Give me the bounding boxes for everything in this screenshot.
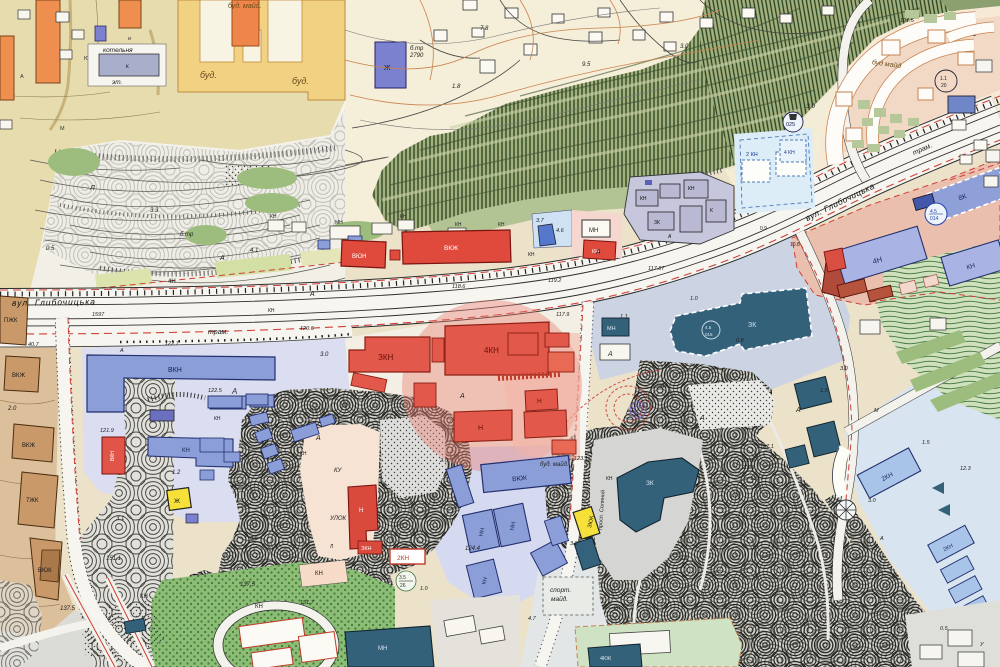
svg-text:Л: Л bbox=[330, 544, 333, 550]
svg-text:А: А bbox=[315, 435, 321, 442]
svg-text:Ж: Ж bbox=[174, 498, 180, 505]
svg-text:ВКЖ: ВКЖ bbox=[444, 245, 458, 252]
svg-text:107.5: 107.5 bbox=[900, 18, 915, 24]
svg-text:025: 025 bbox=[786, 122, 795, 128]
svg-text:2.0: 2.0 bbox=[7, 406, 17, 412]
svg-text:КН: КН bbox=[214, 416, 221, 422]
svg-text:20: 20 bbox=[941, 83, 947, 89]
svg-text:б.тр: б.тр bbox=[410, 46, 424, 52]
svg-text:3.0: 3.0 bbox=[840, 366, 849, 372]
svg-text:КН: КН bbox=[498, 222, 505, 228]
svg-text:А: А bbox=[659, 383, 665, 390]
svg-text:4.7: 4.7 bbox=[528, 616, 537, 622]
svg-text:122.5: 122.5 bbox=[208, 388, 223, 394]
svg-text:ЗК: ЗК bbox=[654, 220, 660, 226]
svg-text:1.8: 1.8 bbox=[452, 84, 461, 90]
svg-text:2001: 2001 bbox=[741, 465, 754, 471]
svg-text:КУ: КУ bbox=[334, 468, 343, 474]
svg-text:26: 26 bbox=[400, 583, 406, 589]
svg-text:120.6: 120.6 bbox=[300, 326, 315, 332]
svg-text:121.9: 121.9 bbox=[100, 428, 114, 434]
svg-text:и: и bbox=[128, 36, 131, 42]
svg-text:ПЖК: ПЖК bbox=[4, 318, 18, 324]
svg-text:3.1: 3.1 bbox=[116, 516, 124, 522]
svg-text:1.1: 1.1 bbox=[620, 314, 628, 320]
svg-text:М: М bbox=[874, 408, 879, 414]
svg-text:КН: КН bbox=[315, 571, 323, 577]
svg-text:1.5: 1.5 bbox=[922, 440, 931, 446]
svg-text:А: А bbox=[309, 291, 315, 298]
svg-text:А: А bbox=[795, 407, 801, 414]
svg-text:КН: КН bbox=[455, 222, 462, 228]
svg-text:вул. Глибочицька: вул. Глибочицька bbox=[12, 296, 96, 307]
svg-text:ВЮК: ВЮК bbox=[38, 568, 52, 574]
svg-text:ЗК: ЗК bbox=[748, 322, 757, 329]
svg-text:0.5: 0.5 bbox=[940, 626, 949, 632]
svg-text:Л: Л bbox=[89, 185, 95, 192]
svg-text:151.7: 151.7 bbox=[300, 600, 315, 606]
svg-text:КН: КН bbox=[268, 308, 275, 314]
svg-text:015: 015 bbox=[705, 332, 713, 337]
svg-text:118.6: 118.6 bbox=[452, 284, 466, 290]
svg-text:УЛОК: УЛОК bbox=[329, 516, 346, 522]
svg-text:3.0: 3.0 bbox=[320, 352, 329, 358]
svg-text:Н: Н bbox=[478, 425, 483, 432]
svg-text:трам.: трам. bbox=[208, 329, 228, 336]
svg-text:0.5: 0.5 bbox=[310, 408, 319, 414]
svg-text:КН: КН bbox=[528, 252, 535, 258]
svg-text:КН: КН bbox=[182, 448, 190, 454]
svg-text:117.9: 117.9 bbox=[556, 312, 569, 318]
svg-text:МН: МН bbox=[589, 228, 598, 234]
svg-text:4КЖ: 4КЖ bbox=[600, 656, 611, 662]
svg-text:1.0: 1.0 bbox=[690, 296, 699, 302]
svg-text:А: А bbox=[879, 536, 884, 542]
svg-text:1597: 1597 bbox=[92, 312, 105, 318]
svg-text:МН: МН bbox=[335, 220, 343, 226]
svg-text:А: А bbox=[119, 348, 124, 354]
svg-text:б.тр: б.тр bbox=[180, 232, 194, 238]
svg-text:2КН: 2КН bbox=[397, 555, 409, 562]
svg-text:0.8: 0.8 bbox=[736, 338, 745, 344]
svg-text:КН: КН bbox=[255, 604, 263, 610]
svg-text:ВКЖ: ВКЖ bbox=[12, 373, 25, 379]
svg-text:9.5: 9.5 bbox=[582, 62, 591, 68]
svg-text:123.1: 123.1 bbox=[574, 456, 588, 462]
svg-text:котельня: котельня bbox=[103, 47, 133, 54]
svg-text:137.5: 137.5 bbox=[60, 606, 76, 612]
svg-text:122.7: 122.7 bbox=[165, 341, 180, 347]
svg-text:4Н: 4Н bbox=[168, 279, 176, 285]
svg-text:буд.: буд. bbox=[200, 70, 217, 80]
svg-text:10.8: 10.8 bbox=[790, 242, 800, 248]
svg-text:3.7: 3.7 bbox=[536, 218, 545, 224]
svg-text:КН: КН bbox=[688, 186, 695, 192]
svg-text:4.5: 4.5 bbox=[705, 325, 712, 330]
svg-text:12.3: 12.3 bbox=[960, 466, 972, 472]
svg-text:0.9: 0.9 bbox=[760, 226, 767, 232]
svg-text:4.6: 4.6 bbox=[556, 228, 565, 234]
svg-text:2790: 2790 bbox=[409, 53, 424, 59]
svg-text:А: А bbox=[595, 249, 601, 256]
svg-text:КЛ: КЛ bbox=[680, 556, 687, 562]
svg-text:2.0: 2.0 bbox=[439, 458, 449, 464]
svg-text:М: М bbox=[60, 126, 65, 132]
svg-text:0.5: 0.5 bbox=[46, 246, 55, 252]
svg-text:3.5: 3.5 bbox=[399, 575, 406, 581]
svg-text:1.5: 1.5 bbox=[820, 388, 829, 394]
svg-text:119.2: 119.2 bbox=[548, 278, 561, 284]
svg-text:А: А bbox=[219, 255, 225, 262]
svg-text:майд.: майд. bbox=[551, 595, 568, 603]
svg-text:КН: КН bbox=[614, 606, 621, 612]
svg-text:А: А bbox=[231, 387, 237, 396]
svg-text:б.тр: б.тр bbox=[742, 458, 754, 464]
svg-text:ЗК: ЗК bbox=[646, 480, 654, 487]
svg-text:эт.: эт. bbox=[112, 79, 123, 86]
svg-text:МН: МН bbox=[607, 326, 616, 332]
svg-text:1.2: 1.2 bbox=[172, 470, 181, 476]
svg-text:4.1: 4.1 bbox=[250, 248, 258, 254]
svg-text:А: А bbox=[667, 234, 672, 240]
svg-text:124.4: 124.4 bbox=[465, 546, 481, 552]
svg-text:буд. майд.: буд. майд. bbox=[540, 461, 569, 468]
svg-text:КН: КН bbox=[262, 440, 269, 446]
svg-text:буд.: буд. bbox=[292, 76, 309, 86]
svg-text:Н: Н bbox=[359, 508, 363, 514]
svg-text:спорт.: спорт. bbox=[550, 587, 571, 594]
svg-text:2 КН: 2 КН bbox=[746, 152, 758, 158]
svg-text:137.5: 137.5 bbox=[240, 582, 256, 588]
svg-text:У: У bbox=[979, 642, 984, 648]
svg-text:А: А bbox=[699, 415, 705, 422]
svg-text:КН: КН bbox=[140, 594, 148, 600]
svg-text:157.1: 157.1 bbox=[760, 444, 774, 450]
svg-text:КН: КН bbox=[400, 214, 407, 220]
svg-text:0.5: 0.5 bbox=[250, 536, 259, 542]
svg-text:117.87: 117.87 bbox=[648, 266, 665, 272]
svg-text:А: А bbox=[20, 74, 24, 80]
svg-text:МН: МН bbox=[378, 646, 387, 652]
svg-text:40.7: 40.7 bbox=[28, 342, 40, 348]
svg-text:3.2: 3.2 bbox=[570, 541, 578, 547]
svg-text:3.3: 3.3 bbox=[150, 208, 159, 214]
svg-text:014: 014 bbox=[930, 216, 939, 222]
svg-text:4КН: 4КН bbox=[484, 346, 499, 355]
svg-text:151.1: 151.1 bbox=[106, 556, 121, 562]
svg-text:1.1: 1.1 bbox=[940, 76, 947, 82]
svg-text:ЗКН: ЗКН bbox=[361, 546, 372, 552]
svg-text:буд. майд.: буд. майд. bbox=[228, 2, 261, 10]
svg-text:3.0: 3.0 bbox=[680, 44, 689, 50]
svg-text:ВКЖ: ВКЖ bbox=[22, 443, 35, 449]
svg-text:7ЖК: 7ЖК bbox=[26, 498, 39, 504]
svg-text:115.1: 115.1 bbox=[750, 476, 763, 482]
svg-text:к: к bbox=[126, 64, 129, 70]
svg-text:4 КН: 4 КН bbox=[784, 150, 795, 156]
svg-text:А: А bbox=[607, 351, 613, 358]
svg-text:КН: КН bbox=[640, 196, 647, 202]
svg-text:ЗКН: ЗКН bbox=[378, 353, 393, 362]
svg-text:Н: Н bbox=[537, 398, 542, 405]
svg-text:К: К bbox=[710, 208, 713, 214]
svg-text:3.0: 3.0 bbox=[868, 498, 877, 504]
svg-text:КН: КН bbox=[300, 451, 307, 457]
svg-text:А: А bbox=[459, 393, 465, 400]
svg-text:КН: КН bbox=[270, 214, 277, 220]
svg-text:7.8: 7.8 bbox=[480, 26, 489, 32]
svg-text:1.0: 1.0 bbox=[420, 586, 429, 592]
svg-text:ВЮН: ВЮН bbox=[352, 254, 366, 260]
svg-text:ВКН: ВКН bbox=[168, 367, 182, 374]
svg-text:ВКН: ВКН bbox=[110, 451, 116, 461]
svg-text:КН: КН bbox=[606, 476, 613, 482]
svg-text:3.0: 3.0 bbox=[806, 103, 815, 110]
